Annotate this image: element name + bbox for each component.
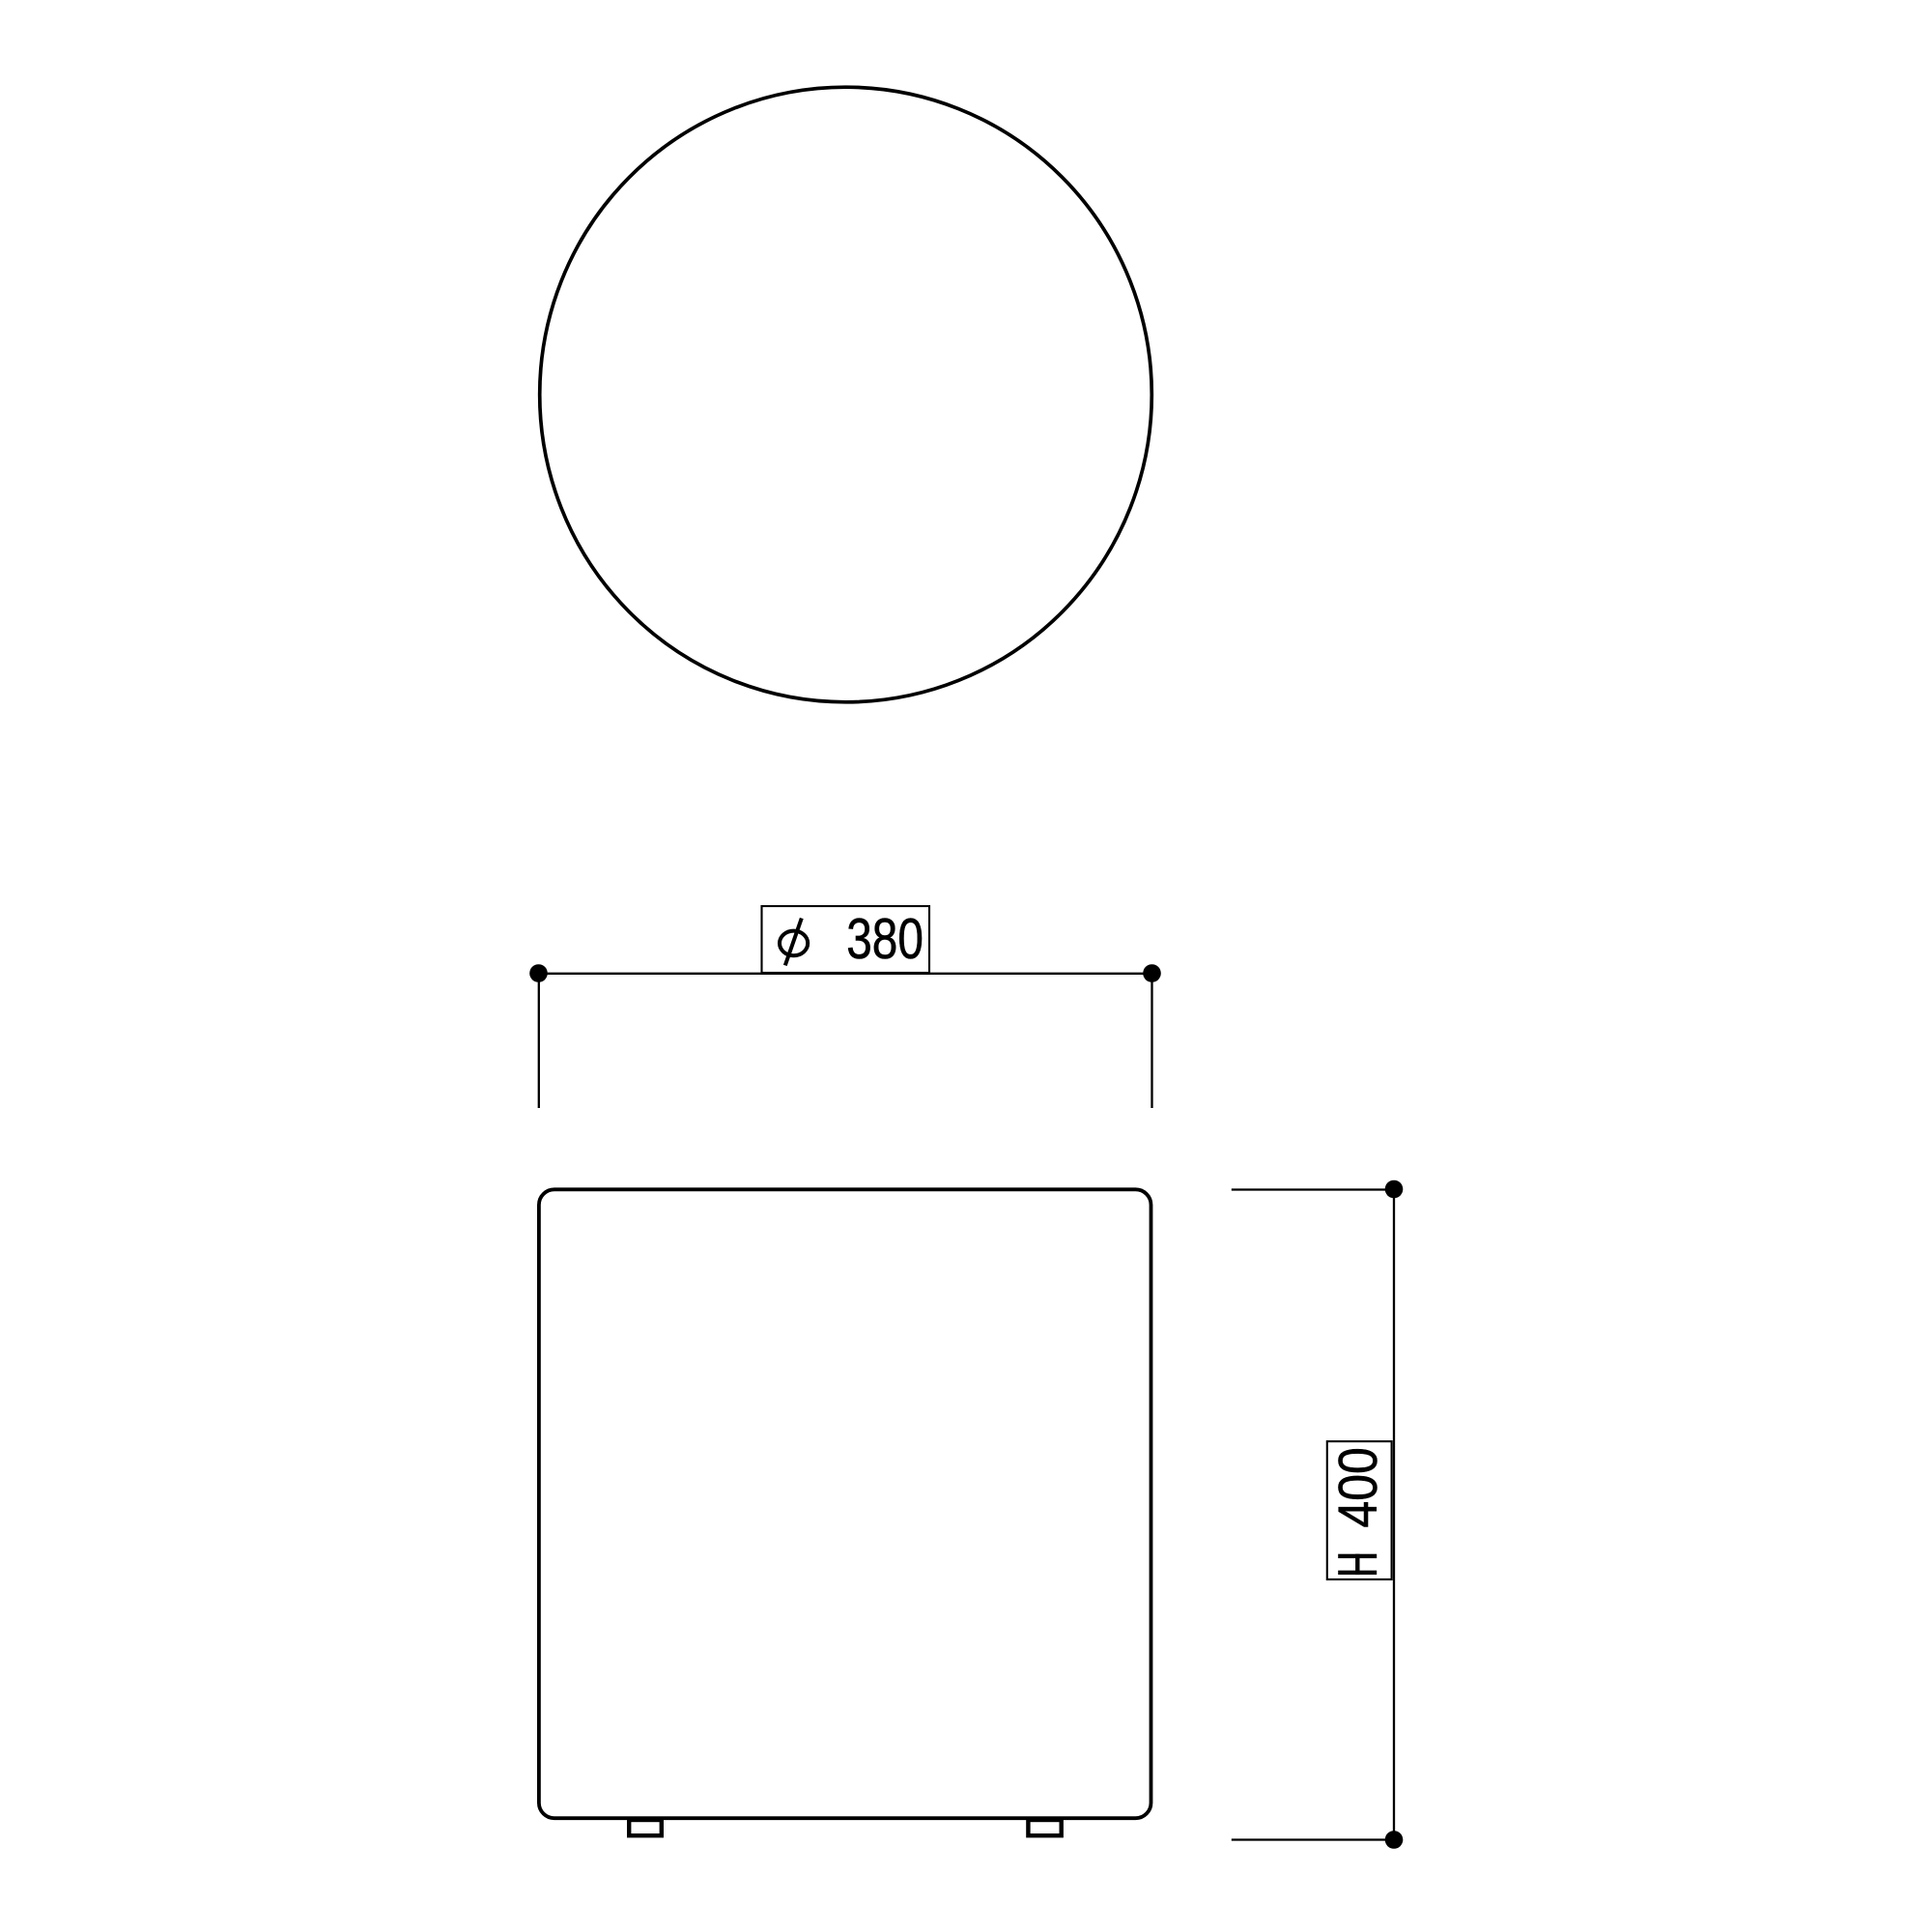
svg-text:400: 400 bbox=[1328, 1447, 1389, 1528]
svg-text:380: 380 bbox=[846, 906, 923, 971]
